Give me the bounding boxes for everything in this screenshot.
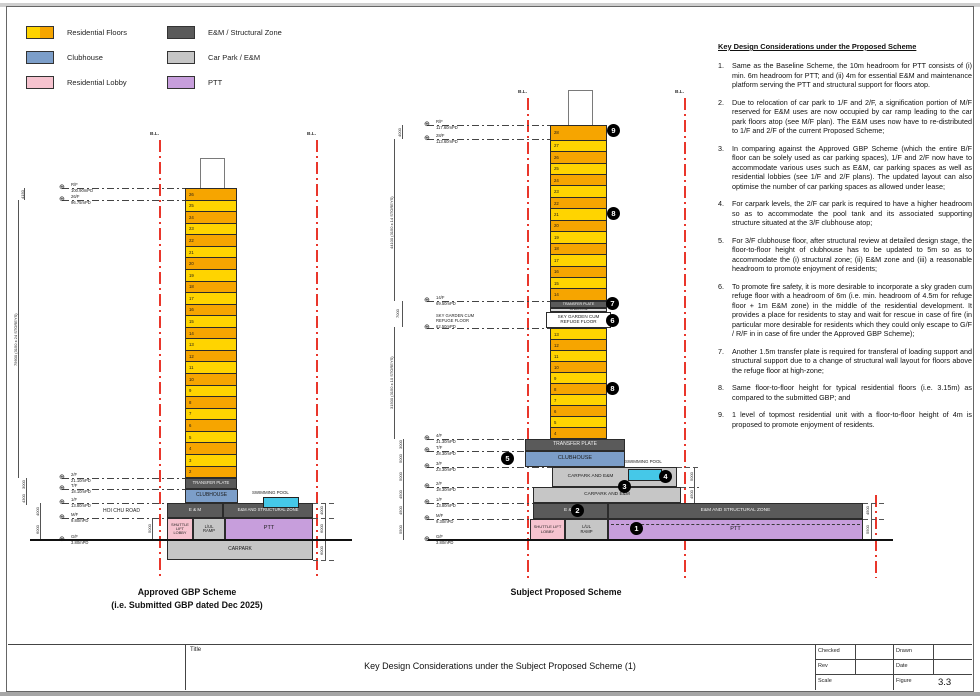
floor-row: 24 [186,211,236,223]
carpark-em-lower-box: CARPARK AND E&M [533,487,681,503]
note-item: 8. Same floor-to-floor height for typica… [718,383,972,402]
swimming-pool [628,469,662,481]
floor-row: 21 [186,246,236,258]
floor-number: 10 [554,365,559,370]
floor-number: 9 [554,376,556,381]
datum-icon: ⊕ [424,447,430,454]
ramp-box: L/UL RAMP [565,519,608,540]
note-number: 4. [718,199,732,228]
legend-label: E&M / Structural Zone [208,28,282,37]
dimension: 5500 [866,520,870,539]
note-number: 1. [718,61,732,90]
ground-line [428,539,893,541]
floor-number: 4 [189,446,191,451]
floor-row: 28 [551,126,606,140]
dimension: 6000 [320,519,324,539]
legend-item: Clubhouse [26,45,127,70]
note-text: In comparing against the Approved GBP Sc… [732,144,972,192]
floor-number: 8 [189,400,191,405]
sheet-title: Key Design Considerations under the Subj… [185,661,815,671]
boundary-label: B.L. [150,132,159,137]
boundary-line-left [159,140,161,578]
floor-row: 17 [186,292,236,304]
extension-line [313,518,337,519]
residential-floor-stack-high: 282726252423222120191817161514 [550,125,607,301]
note-text: Another 1.5m transfer plate is required … [732,347,972,376]
note-item: 9. 1 level of topmost residential unit w… [718,410,972,429]
note-item: 6. To promote fire safety, it is more de… [718,282,972,339]
floor-number: 14 [554,292,559,297]
dimension-line [402,301,403,327]
legend-swatch-icon [167,51,195,64]
floor-row: 7 [551,394,606,405]
datum-icon: ⊕ [59,514,65,521]
floor-number: 28 [554,130,559,135]
floor-number: 23 [554,189,559,194]
floor-number: 2 [189,469,191,474]
em-structural-zone-box: E&M AND STRUCTURAL ZONE [608,503,863,519]
boundary-label: B.L. [307,132,316,137]
legend-item: E&M / Structural Zone [167,20,282,45]
note-text: Due to relocation of car park to 1/F and… [732,98,972,136]
datum-icon: ⊕ [59,485,65,492]
floor-number: 15 [189,319,194,324]
floor-row: 18 [551,243,606,254]
note-number: 6. [718,282,732,339]
figure-number: 3.3 [938,677,951,688]
floor-row: 26 [186,189,236,200]
floor-row: 12 [551,339,606,350]
dimension-line [403,439,404,540]
legend-swatch-icon [167,26,195,39]
floor-row: 6 [186,419,236,431]
floor-number: 22 [189,238,194,243]
dimension-line [694,467,695,503]
floor-number: 19 [554,235,559,240]
checked-label: Checked [818,648,840,654]
floor-row: 22 [551,197,606,208]
boundary-label: B.L. [675,90,684,95]
floor-number: 24 [189,215,194,220]
legend-swatch-icon [26,76,54,89]
floor-row: 7 [186,408,236,420]
road-label: HOI CHU ROAD [103,508,140,514]
floor-row: 26 [551,151,606,162]
floor-number: 25 [554,166,559,171]
note-item: 3. In comparing against the Approved GBP… [718,144,972,192]
legend-item: Residential Floors [26,20,127,45]
floor-row: 10 [551,361,606,372]
callout-5: 5 [501,452,514,465]
floor-number: 24 [554,178,559,183]
floor-row: 5 [551,416,606,427]
floor-number: 18 [189,284,194,289]
callout-4: 4 [659,470,672,483]
floor-number: 13 [189,342,194,347]
legend-label: Residential Floors [67,28,127,37]
floor-number: 14 [189,331,194,336]
extension-line [677,467,699,468]
callout-8-upper: 8 [607,207,620,220]
floor-row: 5 [186,431,236,443]
datum-icon: ⊕ [424,499,430,506]
dimension-line [394,139,395,301]
extension-line [681,487,699,488]
floor-number: 3 [189,458,191,463]
date-label: Date [896,663,908,669]
callout-1: 1 [630,522,643,535]
floor-row: 8 [186,396,236,408]
datum-icon: ⊕ [59,196,65,203]
legend-item: Car Park / E&M [167,45,282,70]
note-number: 3. [718,144,732,192]
residential-floor-stack-low: 13121110987654 [550,328,607,439]
sky-garden-refuge-box: SKY GARDEN CUM REFUGE FLOOR [546,312,611,328]
floor-number: 26 [554,155,559,160]
floor-number: 20 [554,223,559,228]
note-number: 9. [718,410,732,429]
floor-number: 17 [554,258,559,263]
titleblock-line [815,644,816,690]
ramp-box: L/UL RAMP [193,518,225,540]
extension-line [863,519,887,520]
legend-swatch-icon [167,76,195,89]
carpark-box: CARPARK [167,540,313,560]
floor-number: 5 [554,420,556,425]
note-number: 2. [718,98,732,136]
rev-label: Rev [818,663,828,669]
floor-number: 9 [189,388,191,393]
floor-number: 20 [189,261,194,266]
legend-label: Residential Lobby [67,78,127,87]
titleblock-line [815,674,972,675]
floor-row: 24 [551,174,606,185]
floor-row: 20 [186,257,236,269]
floor-row: 12 [186,350,236,362]
datum-icon: ⊕ [424,121,430,128]
ptt-box: PTT [225,518,313,540]
note-item: 7. Another 1.5m transfer plate is requir… [718,347,972,376]
note-item: 5. For 3/F clubhouse floor, after struct… [718,236,972,274]
legend-label: Car Park / E&M [208,53,260,62]
datum-icon: ⊕ [59,184,65,191]
floor-row: 9 [551,372,606,383]
note-item: 4. For carpark levels, the 2/F car park … [718,199,972,228]
notes-heading: Key Design Considerations under the Prop… [718,42,972,51]
datum-icon: ⊕ [424,435,430,442]
swimming-pool [263,497,299,508]
title-cell-label: Title [190,647,201,653]
floor-number: 7 [554,398,556,403]
floor-row: 14 [551,288,606,299]
left-drawing-title: Approved GBP Scheme (i.e. Submitted GBP … [37,586,337,612]
roof-structure [568,90,593,127]
notes-list: 1. Same as the Baseline Scheme, the 10m … [718,61,972,429]
floor-row: 23 [551,185,606,196]
note-text: Same floor-to-floor height for typical r… [732,383,972,402]
floor-number: 7 [189,411,191,416]
floor-number: 8 [554,387,556,392]
roof-structure [200,158,225,190]
floor-number: 6 [554,409,556,414]
extension-line [313,503,337,504]
note-text: Same as the Baseline Scheme, the 10m hea… [732,61,972,90]
dimension-line [152,518,153,540]
callout-2: 2 [571,504,584,517]
floor-row: 11 [551,350,606,361]
titleblock-line [815,659,972,660]
floor-number: 17 [189,296,194,301]
legend-swatch-icon [26,26,54,39]
transfer-plate-box: TRANSFER PLATE [525,439,625,451]
floor-number: 19 [189,273,194,278]
floor-row: 10 [186,373,236,385]
legend-swatch-icon [26,51,54,64]
datum-icon: ⊕ [424,135,430,142]
floor-row: 19 [551,231,606,242]
floor-row: 13 [186,338,236,350]
floor-number: 16 [554,269,559,274]
floor-number: 21 [554,212,559,217]
dimension-line [325,503,326,560]
note-text: To promote fire safety, it is more desir… [732,282,972,339]
note-text: 1 level of topmost residential unit with… [732,410,972,429]
floor-row: 15 [551,277,606,288]
floor-row: 18 [186,281,236,293]
swimming-pool-label: SWIMMING POOL [252,490,289,495]
floor-number: 21 [189,250,194,255]
extension-line [313,560,337,561]
note-number: 5. [718,236,732,274]
floor-number: 6 [189,423,191,428]
floor-row: 16 [186,304,236,316]
floor-row: 3 [186,454,236,466]
callout-7: 7 [606,297,619,310]
legend-label: Clubhouse [67,53,103,62]
transfer-plate-mid-box: TRANSFER PLATE [550,301,607,308]
floor-number: 22 [554,201,559,206]
floor-number: 25 [189,203,194,208]
shuttle-lift-lobby-box: SHUTTLE LIFT LOBBY [167,518,193,540]
datum-icon: ⊕ [59,474,65,481]
floor-number: 10 [189,377,194,382]
floor-row: 25 [186,200,236,212]
dimension: 4000 [320,503,324,518]
floor-number: 23 [189,226,194,231]
callout-6: 6 [606,314,619,327]
floor-number: 27 [554,143,559,148]
dimension-line [18,200,19,478]
note-item: 1. Same as the Baseline Scheme, the 10m … [718,61,972,90]
dimension-line [402,125,403,139]
legend-label: PTT [208,78,222,87]
notes-panel: Key Design Considerations under the Prop… [718,42,972,437]
floor-number: 11 [189,365,193,370]
dimension: 4500 [866,504,870,518]
datum-icon: ⊕ [424,324,430,331]
em-platform-dashed-line [611,524,860,525]
residential-floor-stack: 2625242322212019181716151413121110987654… [185,188,237,478]
datum-icon: ⊕ [424,297,430,304]
boundary-line-right [875,495,877,578]
floor-row: 21 [551,208,606,219]
floor-row: 27 [551,140,606,151]
scale-label: Scale [818,678,832,684]
boundary-label: B.L. [518,90,527,95]
clubhouse-box: CLUBHOUSE [525,451,625,467]
floor-row: 6 [551,405,606,416]
datum-icon: ⊕ [424,515,430,522]
datum-icon: ⊕ [424,483,430,490]
sheet-bottom-edge [0,692,980,696]
drawing-sheet: Residential Floors Clubhouse Residential… [0,0,980,696]
callout-9: 9 [607,124,620,137]
note-text: For carpark levels, the 2/F car park is … [732,199,972,228]
floor-row: 15 [186,315,236,327]
floor-row: 13 [551,329,606,339]
clubhouse-box: CLUBHOUSE [185,489,238,503]
figure-label: Figure [896,678,912,684]
floor-number: 15 [554,281,559,286]
floor-row: 20 [551,220,606,231]
callout-8-lower: 8 [606,382,619,395]
extension-line [863,503,887,504]
boundary-line-left [316,140,318,578]
floor-row: 2 [186,466,236,478]
dimension-line [40,503,41,540]
legend-item: PTT [167,70,282,95]
floor-number: 16 [189,307,194,312]
datum-icon: ⊕ [424,463,430,470]
boundary-line-right [527,98,529,578]
floor-number: 11 [554,354,558,359]
floor-row: 9 [186,385,236,397]
note-number: 7. [718,347,732,376]
note-item: 2. Due to relocation of car park to 1/F … [718,98,972,136]
floor-number: 5 [189,435,191,440]
em-box: E & M [167,503,223,518]
titleblock-line [8,644,972,645]
legend-item: Residential Lobby [26,70,127,95]
right-drawing-title: Subject Proposed Scheme [446,586,686,599]
dimension-line [871,503,872,540]
floor-number: 12 [554,343,559,348]
floor-row: 8 [551,383,606,394]
dimension: 6000 [320,541,324,560]
floor-row: 17 [551,254,606,265]
floor-number: 12 [189,354,194,359]
floor-number: 4 [554,431,556,436]
legend: Residential Floors Clubhouse Residential… [26,20,282,95]
floor-row: 4 [186,442,236,454]
note-number: 8. [718,383,732,402]
transfer-plate-box: TRANSFER PLATE [185,478,237,489]
floor-number: 26 [189,192,194,197]
floor-row: 22 [186,234,236,246]
dimension-line [394,327,395,439]
note-text: For 3/F clubhouse floor, after structura… [732,236,972,274]
floor-row: 23 [186,223,236,235]
floor-number: 13 [554,332,559,337]
drawn-label: Drawn [896,648,912,654]
callout-3: 3 [618,480,631,493]
floor-row: 25 [551,163,606,174]
floor-row: 4 [551,427,606,438]
floor-row: 14 [186,327,236,339]
swimming-pool-label: SWIMMING POOL [625,459,662,464]
floor-row: 19 [186,269,236,281]
floor-number: 18 [554,246,559,251]
titleblock-line [893,644,894,690]
dimension-line [26,478,27,505]
dimension-line [24,188,25,200]
ptt-box: PTT [608,519,863,540]
datum-icon: ⊕ [59,499,65,506]
floor-row: 16 [551,266,606,277]
ground-line [30,539,352,541]
dimension: 7000 [396,302,400,326]
floor-row: 11 [186,361,236,373]
shuttle-lift-lobby-box: SHUTTLE LIFT LOBBY [530,519,565,540]
